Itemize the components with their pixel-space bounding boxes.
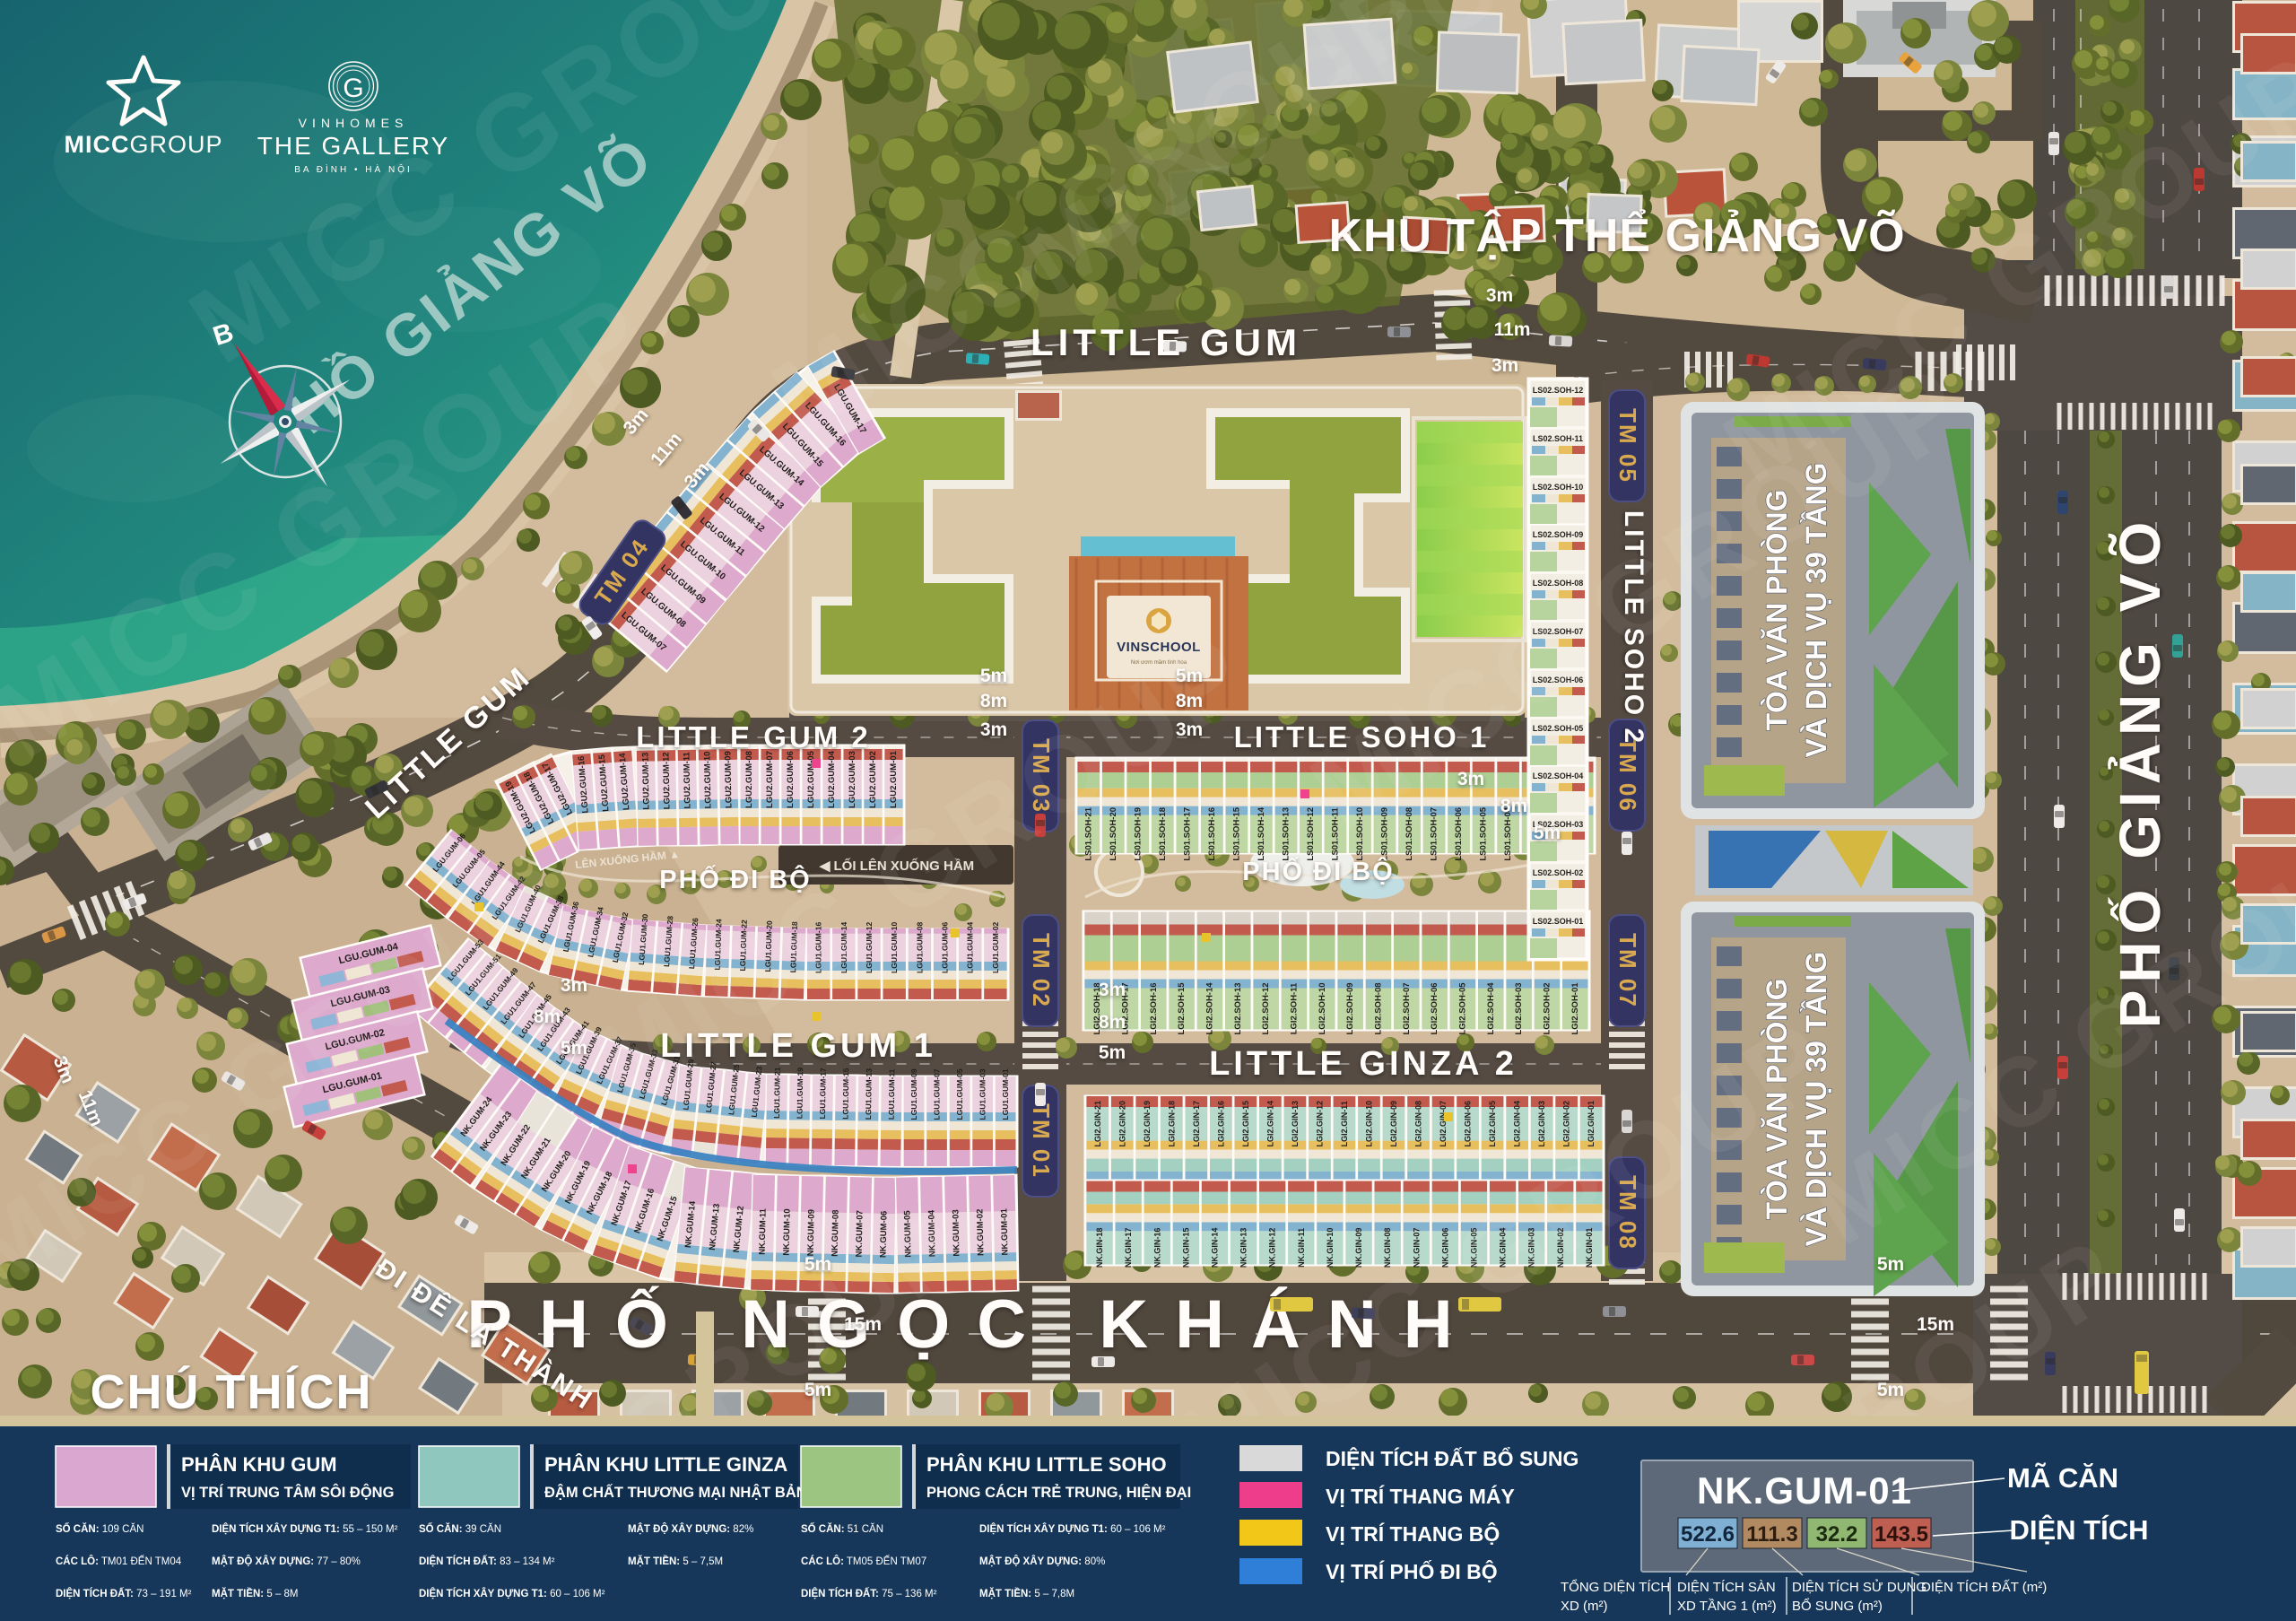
svg-text:DIỆN TÍCH ĐẤT: 83 – 134 M²: DIỆN TÍCH ĐẤT: 83 – 134 M² (419, 1556, 555, 1567)
svg-text:522.6: 522.6 (1681, 1522, 1735, 1547)
svg-text:ĐẬM CHẤT THƯƠNG MẠI NHẬT BẢN: ĐẬM CHẤT THƯƠNG MẠI NHẬT BẢN (544, 1484, 807, 1501)
svg-text:PHÂN KHU LITTLE SOHO: PHÂN KHU LITTLE SOHO (926, 1453, 1167, 1476)
svg-text:PHÂN KHU LITTLE GINZA: PHÂN KHU LITTLE GINZA (544, 1453, 787, 1476)
svg-text:NK.GUM-01: NK.GUM-01 (1697, 1469, 1912, 1512)
svg-text:XD (m²): XD (m²) (1561, 1599, 1608, 1614)
svg-text:32.2: 32.2 (1816, 1522, 1858, 1547)
svg-text:VỊ TRÍ THANG MÁY: VỊ TRÍ THANG MÁY (1326, 1484, 1515, 1508)
svg-text:DIỆN TÍCH XÂY DỰNG T1: 60 – 10: DIỆN TÍCH XÂY DỰNG T1: 60 – 106 M² (979, 1523, 1166, 1535)
svg-text:CHÚ THÍCH: CHÚ THÍCH (91, 1365, 373, 1419)
svg-text:MẶT TIỀN: 5 – 8M: MẶT TIỀN: 5 – 8M (212, 1588, 299, 1599)
svg-text:CÁC LÔ: TM01 ĐẾN TM04: CÁC LÔ: TM01 ĐẾN TM04 (56, 1556, 182, 1567)
svg-text:DIỆN TÍCH SÀN: DIỆN TÍCH SÀN (1677, 1580, 1776, 1595)
svg-text:DIỆN TÍCH ĐẤT (m²): DIỆN TÍCH ĐẤT (m²) (1921, 1580, 2047, 1595)
svg-text:MÃ CĂN: MÃ CĂN (2007, 1462, 2118, 1494)
svg-text:DIỆN TÍCH XÂY DỰNG T1: 55 – 15: DIỆN TÍCH XÂY DỰNG T1: 55 – 150 M² (212, 1523, 398, 1535)
svg-text:PHÂN KHU GUM: PHÂN KHU GUM (181, 1453, 337, 1476)
svg-text:VỊ TRÍ PHỐ ĐI BỘ: VỊ TRÍ PHỐ ĐI BỘ (1326, 1559, 1498, 1583)
svg-text:DIỆN TÍCH: DIỆN TÍCH (2010, 1513, 2149, 1546)
svg-text:PHONG CÁCH TRẺ TRUNG, HIỆN ĐẠI: PHONG CÁCH TRẺ TRUNG, HIỆN ĐẠI (926, 1484, 1191, 1501)
svg-text:143.5: 143.5 (1874, 1522, 1928, 1547)
svg-text:BỔ SUNG (m²): BỔ SUNG (m²) (1792, 1598, 1883, 1614)
svg-text:MẶT TIỀN: 5 – 7,5M: MẶT TIỀN: 5 – 7,5M (628, 1556, 723, 1567)
svg-text:VỊ TRÍ THANG BỘ: VỊ TRÍ THANG BỘ (1326, 1521, 1500, 1546)
svg-text:MẶT TIỀN: 5 – 7,8M: MẶT TIỀN: 5 – 7,8M (979, 1588, 1074, 1599)
svg-text:111.3: 111.3 (1746, 1522, 1797, 1547)
svg-text:SỐ CĂN: 39 CĂN: SỐ CĂN: 39 CĂN (419, 1522, 501, 1535)
svg-text:TỔNG DIỆN TÍCH: TỔNG DIỆN TÍCH (1561, 1579, 1670, 1595)
svg-text:DIỆN TÍCH XÂY DỰNG T1: 60 – 10: DIỆN TÍCH XÂY DỰNG T1: 60 – 106 M² (419, 1588, 605, 1599)
svg-text:DIỆN TÍCH SỬ DỤNG: DIỆN TÍCH SỬ DỤNG (1792, 1579, 1926, 1595)
svg-text:SỐ CĂN: 51 CĂN: SỐ CĂN: 51 CĂN (801, 1522, 883, 1535)
svg-text:XD TẦNG 1 (m²): XD TẦNG 1 (m²) (1677, 1599, 1777, 1614)
svg-text:DIỆN TÍCH ĐẤT: 73 – 191 M²: DIỆN TÍCH ĐẤT: 73 – 191 M² (56, 1588, 192, 1599)
svg-text:DIỆN TÍCH ĐẤT: 75 – 136 M²: DIỆN TÍCH ĐẤT: 75 – 136 M² (801, 1588, 937, 1599)
svg-text:DIỆN TÍCH ĐẤT BỔ SUNG: DIỆN TÍCH ĐẤT BỔ SUNG (1326, 1446, 1578, 1470)
svg-text:SỐ CĂN: 109 CĂN: SỐ CĂN: 109 CĂN (56, 1522, 143, 1535)
svg-text:VỊ TRÍ TRUNG TÂM SÔI ĐỘNG: VỊ TRÍ TRUNG TÂM SÔI ĐỘNG (181, 1484, 394, 1501)
svg-text:MẬT ĐỘ XÂY DỰNG: 80%: MẬT ĐỘ XÂY DỰNG: 80% (979, 1556, 1105, 1567)
svg-text:MẬT ĐỘ XÂY DỰNG: 77 – 80%: MẬT ĐỘ XÂY DỰNG: 77 – 80% (212, 1556, 361, 1567)
svg-text:CÁC LÔ: TM05 ĐẾN TM07: CÁC LÔ: TM05 ĐẾN TM07 (801, 1556, 926, 1567)
svg-text:MẬT ĐỘ XÂY DỰNG: 82%: MẬT ĐỘ XÂY DỰNG: 82% (628, 1523, 753, 1535)
